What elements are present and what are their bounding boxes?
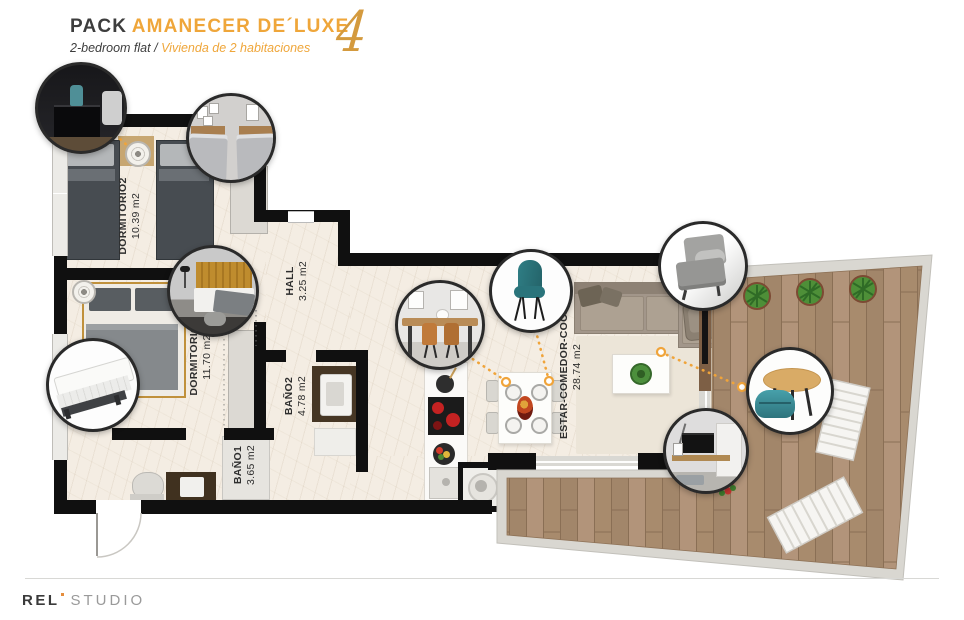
wall [112, 428, 186, 440]
bedroom1-decor-ring [72, 280, 96, 304]
terrace-plant [850, 276, 876, 302]
teal-chair-photo-callout [489, 249, 573, 333]
coffee-table-pouf-photo-callout [746, 347, 834, 435]
wall [488, 453, 536, 470]
wall [356, 352, 368, 472]
rug [676, 475, 704, 485]
room-label-hall: HALL 3.25 m2 [284, 261, 310, 301]
wall [54, 256, 67, 334]
room-label-bano1: BAÑO1 3.65 m2 [232, 445, 258, 485]
nightstand-photo-callout [35, 62, 127, 154]
bathroom2-mat [314, 428, 356, 456]
tan-chair [444, 323, 459, 345]
nightstand [54, 105, 100, 141]
wall [262, 350, 286, 362]
wall [224, 428, 274, 440]
sun-lounger [768, 477, 863, 553]
bathroom2-vanity [312, 366, 358, 422]
subtitle: 2-bedroom flat / Vivienda de 2 habitacio… [70, 41, 349, 55]
entry-door-gap [96, 500, 141, 514]
pack-title-prefix: PACK [70, 16, 127, 37]
armchair-photo-callout [658, 221, 748, 311]
table-centerpiece [517, 396, 533, 420]
logo-text: REL [22, 592, 60, 609]
terrace-glass-door [536, 456, 638, 466]
coffee-table [612, 354, 670, 394]
studio-logo: RELSTUDIO [22, 592, 145, 609]
dining-table-photo-callout [395, 280, 485, 370]
connector-ring [738, 383, 746, 391]
side-cabinet [716, 423, 742, 477]
logo-suffix: STUDIO [71, 592, 146, 609]
subtitle-es: Vivienda de 2 habitaciones [161, 41, 310, 55]
header: PACK AMANECER DE´LUXE 2-bedroom flat / V… [70, 16, 349, 55]
bed-headboard-photo-callout [167, 245, 259, 337]
plant [630, 363, 652, 385]
mustard-headboard [196, 262, 252, 290]
teal-vase [70, 85, 83, 106]
wall [54, 460, 67, 514]
tv-screen [682, 433, 714, 453]
room-label-dormitorio2: DORMITORIO2 10.39 m2 [117, 177, 143, 254]
pack-number: 4 [334, 4, 370, 62]
bathroom1-vanity [166, 472, 216, 502]
floor-plan-page: PACK AMANECER DE´LUXE 2-bedroom flat / V… [0, 0, 964, 620]
subtitle-divider: / [154, 41, 157, 55]
chair-seat [514, 286, 545, 298]
teal-pouf [755, 390, 795, 418]
table-top [402, 318, 478, 326]
tan-chair [422, 323, 437, 345]
fruit-bowl [433, 443, 455, 465]
window-gap [288, 211, 314, 223]
terrace-plant [797, 279, 823, 305]
footer-divider [25, 578, 939, 579]
subtitle-en: 2-bedroom flat [70, 41, 151, 55]
pack-title-main: AMANECER DE´LUXE [132, 16, 350, 37]
terrace-plant [744, 283, 770, 309]
small-frame [673, 443, 683, 456]
cooktop [428, 397, 464, 435]
logo-accent [61, 593, 64, 596]
wall [254, 322, 266, 434]
twin-beds-photo-callout [186, 93, 276, 183]
round-table-top [763, 368, 821, 392]
room-label-bano2: BAÑO2 4.78 m2 [283, 376, 309, 416]
door-swing [97, 513, 141, 557]
tv-unit-photo-callout [663, 408, 749, 494]
mattress-photo-callout [46, 338, 140, 432]
bed-twin-1 [62, 140, 120, 260]
pouf [204, 312, 226, 326]
dining-table [498, 372, 552, 444]
bedroom2-decor-ring [125, 141, 151, 167]
